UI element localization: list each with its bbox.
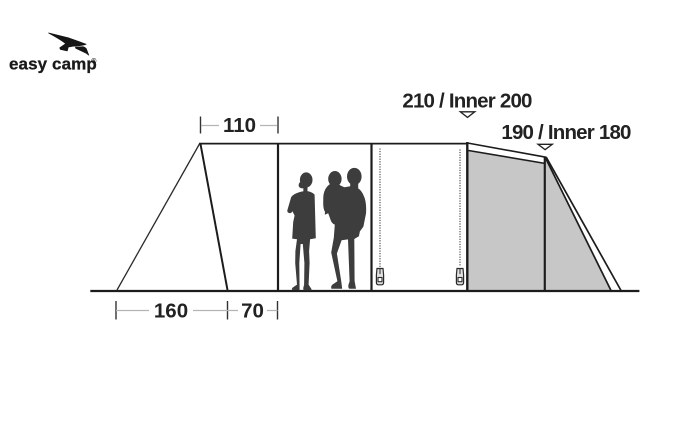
svg-text:®: ®	[91, 58, 97, 66]
svg-text:210 / Inner 200: 210 / Inner 200	[402, 89, 532, 112]
svg-text:70: 70	[241, 300, 264, 323]
svg-text:110: 110	[223, 114, 256, 137]
svg-text:easy camp: easy camp	[9, 55, 97, 74]
svg-text:190 / Inner 180: 190 / Inner 180	[501, 121, 631, 144]
svg-text:160: 160	[154, 300, 188, 323]
